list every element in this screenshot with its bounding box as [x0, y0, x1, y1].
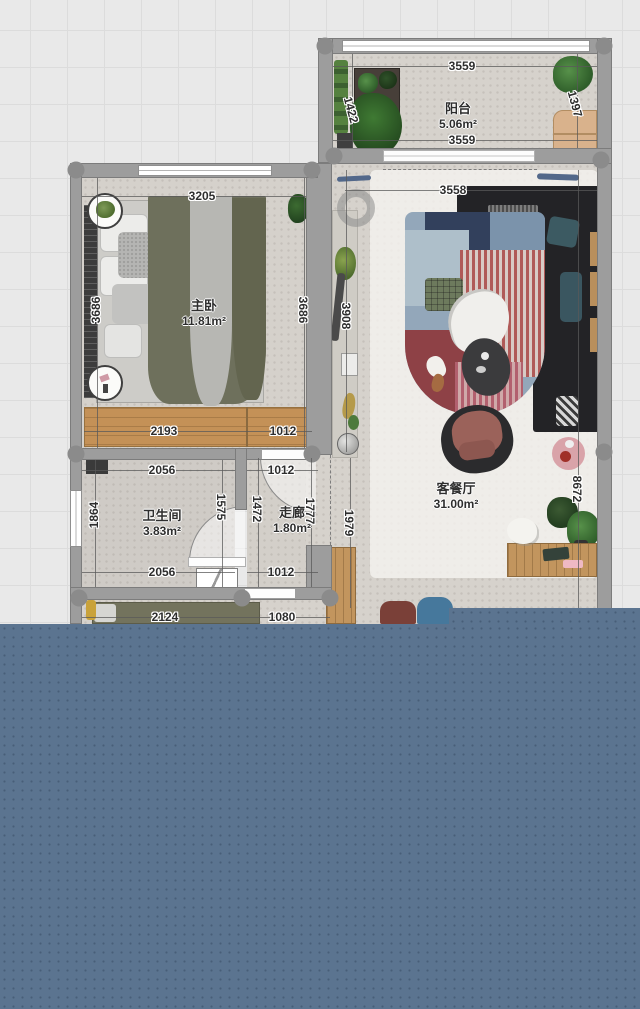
sofa-pillow-striped: [556, 396, 578, 426]
balcony-window: [342, 40, 590, 52]
bathroom-corridor-divider: [235, 448, 247, 510]
dimension-label: 1575: [214, 494, 228, 521]
console-box: [341, 353, 358, 376]
room-area: 31.00m²: [434, 497, 479, 512]
room-area: 3.83m²: [142, 524, 181, 539]
wall-joint: [322, 590, 339, 607]
bottom-panel: [0, 624, 640, 1009]
console-globe: [337, 433, 359, 455]
bed-blanket-right-fold: [232, 198, 266, 400]
dimension-label: 1864: [87, 502, 101, 529]
south-bed-pillow: [94, 604, 116, 622]
balcony-sliding-door: [383, 150, 535, 162]
room-label-master-bedroom[interactable]: 主卧11.81m²: [182, 298, 226, 329]
balcony-shelf-plant-2: [379, 71, 397, 89]
dimension-label: 3686: [296, 297, 310, 324]
table-cup: [481, 352, 489, 360]
wall-joint: [234, 590, 251, 607]
nightstand-plant: [96, 201, 115, 218]
room-label-balcony[interactable]: 阳台5.06m²: [439, 101, 477, 132]
dimension-label: 3559: [449, 133, 476, 147]
room-name: 卫生间: [142, 508, 181, 524]
wall-joint: [71, 590, 88, 607]
dimension-label: 3205: [189, 189, 216, 203]
dimension-label: 1080: [269, 610, 296, 624]
wall-joint: [326, 148, 343, 165]
dimension-label: 3686: [89, 297, 103, 324]
dimension-label: 2193: [151, 424, 178, 438]
room-name: 客餐厅: [434, 481, 479, 497]
dimension-label: 3558: [440, 183, 467, 197]
room-label-corridor[interactable]: 走廊1.80m²: [273, 505, 311, 536]
wall-joint: [68, 446, 85, 463]
dashed-line-balcony-door: [383, 169, 537, 170]
bathroom-window: [70, 490, 82, 547]
room-label-living-dining[interactable]: 客餐厅31.00m²: [434, 481, 479, 512]
dimension-label: 2056: [149, 565, 176, 579]
wall-joint: [304, 446, 321, 463]
balcony-wall-right: [597, 38, 612, 163]
bedroom-window: [138, 165, 272, 176]
dashed-line-living-opening: [330, 455, 331, 545]
room-name: 阳台: [439, 101, 477, 117]
room-name: 主卧: [182, 298, 226, 314]
pink-table-bowl: [560, 451, 571, 462]
dimension-label: 8672: [570, 476, 584, 503]
room-area: 1.80m²: [273, 521, 311, 536]
dimension-label: 3908: [339, 303, 353, 330]
balcony-wall-left: [318, 38, 333, 163]
bathroom-door-leaf: [188, 557, 246, 567]
white-chair[interactable]: [507, 518, 537, 544]
dim-line: [222, 460, 223, 587]
dimension-label: 1979: [342, 510, 356, 537]
room-name: 走廊: [273, 505, 311, 521]
dimension-label: 2124: [152, 610, 179, 624]
dimension-label: 3559: [449, 59, 476, 73]
south-door-gap: [245, 589, 295, 598]
room-label-bathroom[interactable]: 卫生间3.83m²: [142, 508, 181, 539]
bathroom-sink[interactable]: [196, 568, 238, 588]
desk-pink-pad: [563, 560, 583, 568]
dimension-label: 1012: [270, 424, 297, 438]
table-dish: [476, 366, 486, 373]
ceiling-ring-fixture: [337, 189, 375, 227]
dim-line: [345, 190, 597, 191]
console-green-item: [348, 415, 359, 430]
wall-joint: [68, 162, 85, 179]
nightstand-bottom[interactable]: [87, 365, 123, 401]
dimension-label: 2056: [149, 463, 176, 477]
wardrobe-divider: [246, 407, 248, 447]
sofa-pillow-teal-1: [546, 216, 580, 249]
room-area: 11.81m²: [182, 314, 226, 329]
pink-table-cup: [565, 440, 574, 448]
dining-chair-blue[interactable]: [417, 597, 453, 624]
dimension-label: 1012: [268, 463, 295, 477]
balcony-shelf-plant-1: [358, 73, 378, 93]
dining-chair-red[interactable]: [380, 601, 416, 624]
wall-joint: [317, 38, 334, 55]
dim-line: [578, 170, 579, 608]
nightstand-item-dark: [103, 384, 108, 393]
console-shelf[interactable]: [332, 210, 358, 458]
balcony-plant-large[interactable]: [350, 93, 402, 155]
living-wall-right: [597, 163, 612, 610]
dimension-label: 1012: [268, 565, 295, 579]
floorplan-editor-viewport: 3559142213973559320535583686368639082193…: [0, 0, 640, 1009]
wall-joint: [304, 162, 321, 179]
room-area: 5.06m²: [439, 117, 477, 132]
wall-joint: [596, 444, 613, 461]
wall-joint: [596, 38, 613, 55]
dimension-label: 1472: [250, 496, 264, 523]
bedroom-wall-left: [70, 163, 82, 460]
bed-pillow-5: [104, 324, 142, 358]
wall-joint: [593, 152, 610, 169]
